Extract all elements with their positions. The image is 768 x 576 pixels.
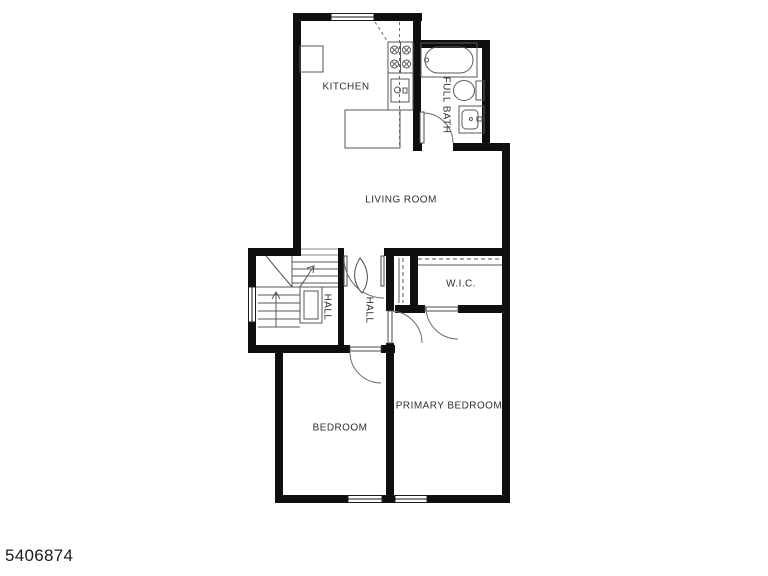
- room-label-hall-center: HALL: [364, 297, 375, 324]
- stair-up-arrow: [272, 266, 314, 327]
- doors: [301, 112, 458, 383]
- room-label-full-bath: FULL BATH: [441, 77, 452, 134]
- toilet: [454, 81, 485, 101]
- bath-fixtures: [421, 43, 484, 133]
- bedroom-window: [348, 496, 382, 503]
- room-label-primary-bedroom: PRIMARY BEDROOM: [396, 401, 502, 412]
- wic-door: [425, 307, 458, 339]
- room-label-living-room: LIVING ROOM: [365, 195, 437, 206]
- linen-closet-rod: [399, 258, 403, 303]
- hall-window: [249, 287, 256, 322]
- stairs-cased-opening: [301, 249, 338, 255]
- stair-handrail: [300, 287, 322, 323]
- room-label-bedroom: BEDROOM: [313, 423, 368, 434]
- kitchen-window: [331, 14, 374, 21]
- wic-shelf-and-rod: [418, 259, 502, 265]
- hall-to-primary-bedroom-door: [388, 311, 422, 343]
- listing-number: 5406874: [5, 546, 73, 566]
- bathtub: [421, 43, 477, 77]
- range-stove: [388, 42, 413, 73]
- refrigerator: [300, 46, 323, 72]
- floor-plan-drawing: [0, 0, 768, 576]
- room-label-hall-stairs: HALL: [322, 294, 333, 321]
- floor-plan-page: KITCHEN FULL BATH LIVING ROOM W.I.C. HAL…: [0, 0, 768, 576]
- walls: [248, 13, 510, 503]
- hall-to-bedroom-door: [350, 347, 381, 383]
- living-to-hall-door: [344, 256, 384, 298]
- kitchen-peninsula-counter: [345, 110, 400, 148]
- bathroom-sink: [459, 106, 484, 133]
- primary-bedroom-window: [395, 496, 427, 503]
- stair-break-line: [266, 256, 292, 287]
- room-label-kitchen: KITCHEN: [322, 82, 369, 93]
- room-label-wic: W.I.C.: [446, 279, 476, 290]
